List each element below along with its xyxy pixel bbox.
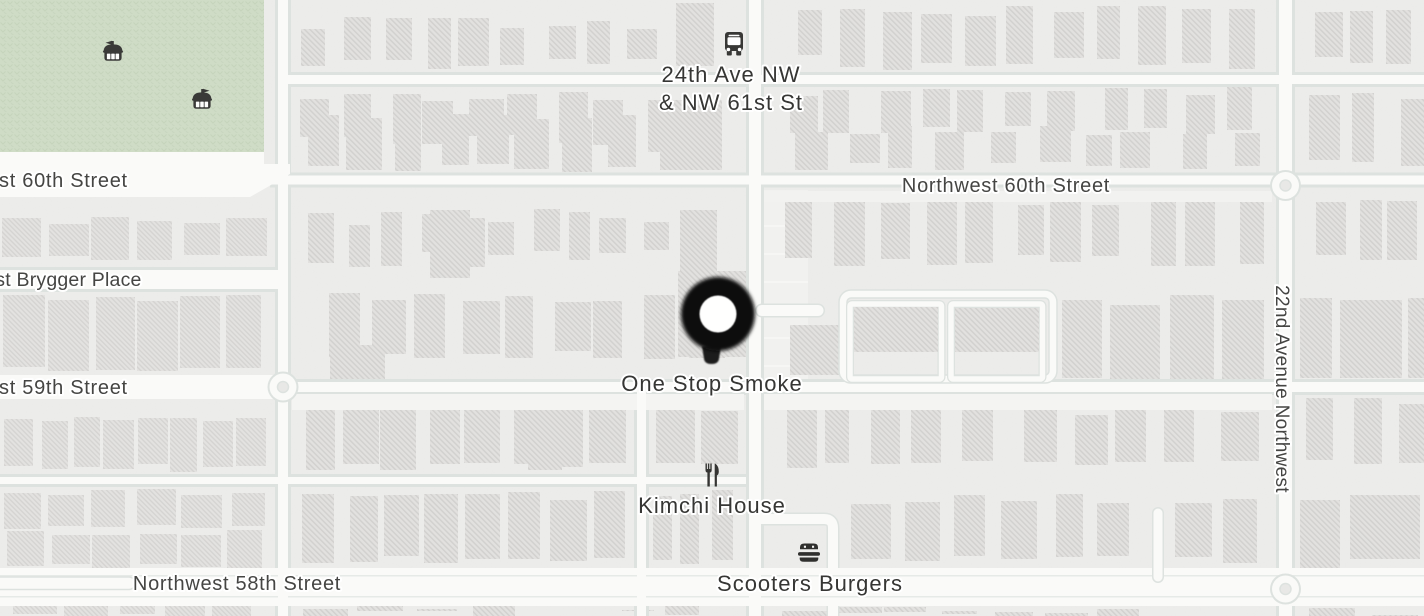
svg-text:Scooters Burgers: Scooters Burgers — [717, 571, 903, 596]
svg-text:Northwest 60th Street: Northwest 60th Street — [902, 175, 1110, 197]
svg-text:22nd Avenue Northwest: 22nd Avenue Northwest — [1271, 285, 1292, 493]
svg-text:Northwest 58th Street: Northwest 58th Street — [133, 573, 341, 595]
svg-text:One Stop Smoke: One Stop Smoke — [621, 371, 803, 396]
svg-text:West Brygger Place: West Brygger Place — [0, 269, 142, 291]
svg-text:& NW 61st St: & NW 61st St — [659, 90, 803, 115]
svg-text:Kimchi House: Kimchi House — [638, 493, 786, 518]
svg-text:West 59th Street: West 59th Street — [0, 377, 128, 399]
svg-text:24th Ave NW: 24th Ave NW — [662, 62, 801, 87]
svg-text:West 60th Street: West 60th Street — [0, 170, 128, 192]
